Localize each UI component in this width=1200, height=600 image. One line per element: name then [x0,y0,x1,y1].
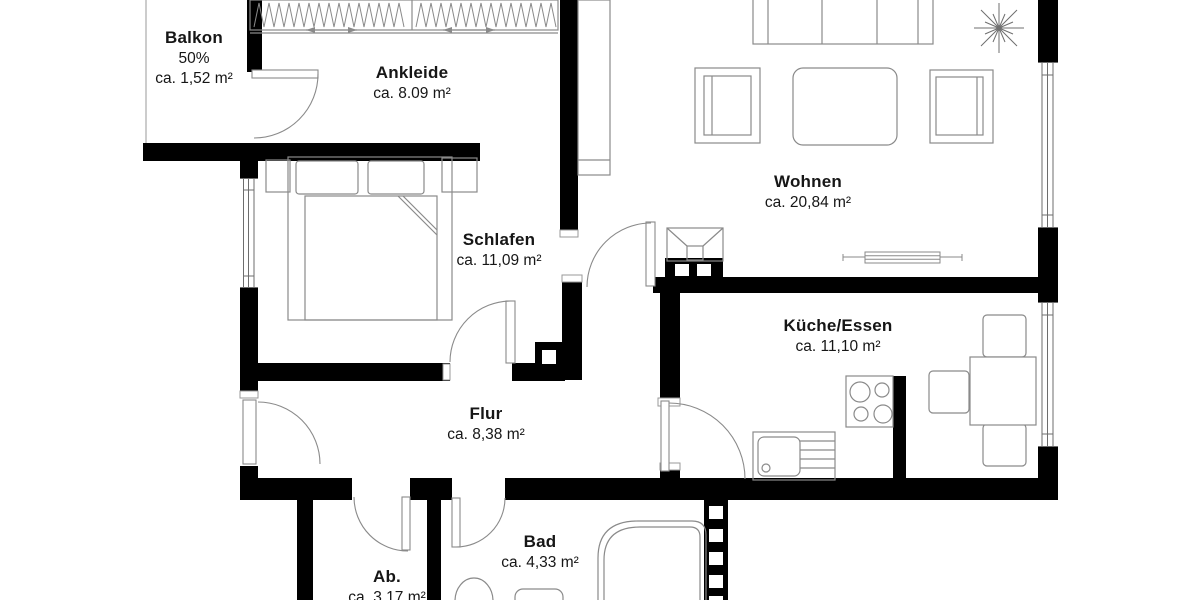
room-label-ankleide: Ankleide ca. 8.09 m² [373,62,451,104]
tv-cabinet-hole-2 [697,264,711,276]
room-area: ca. 11,09 m² [456,251,541,271]
shaft-bad-hole-4 [709,575,723,588]
shaft-hole [542,350,556,364]
bathtub [598,521,706,600]
window-wohnen [1038,63,1058,228]
door-bad [452,498,505,547]
walls [143,0,1058,600]
door-schlafen [450,301,515,363]
dining-set [929,315,1036,466]
room-name: Bad [501,531,579,553]
door-balkon [252,70,318,138]
floorplan-canvas: Balkon 50% ca. 1,52 m² Ankleide ca. 8.09… [0,0,1200,600]
wall-ankleide-right [560,0,578,230]
wall-schlafen-bottom-left [240,363,450,381]
shaft-bad-hole-2 [709,529,723,542]
wall-balkon-divider [247,0,262,72]
room-area: ca. 1,52 m² [155,69,233,89]
pillow-left [296,161,358,194]
room-label-balkon: Balkon 50% ca. 1,52 m² [155,27,233,89]
room-name: Balkon [155,27,233,49]
window-schlafen [240,179,258,288]
door-wohnen [587,222,655,287]
armchair-right [930,70,993,143]
armchair-left [695,68,760,143]
room-area: ca. 3,17 m² [348,588,426,600]
shaft-bad-hole-5 [709,596,723,600]
window-kueche [1038,303,1058,447]
wall-right-2 [1038,228,1058,302]
wall-left-2 [240,288,258,398]
wall-kueche-left [660,290,680,400]
room-label-ab: Ab. ca. 3,17 m² [348,566,426,600]
room-name: Wohnen [765,171,851,193]
radiator [843,252,962,263]
kitchen-sink-unit [753,432,835,480]
tv [667,228,723,261]
sofa [753,0,933,44]
door-ab [354,497,410,551]
dining-chair-left [929,371,969,413]
dining-table [970,357,1036,425]
room-label-wohnen: Wohnen ca. 20,84 m² [765,171,851,213]
wall-ab-left [297,500,313,600]
room-note: 50% [155,49,233,69]
wardrobe [250,0,558,33]
wall-stove-stub [893,376,906,480]
room-name: Küche/Essen [784,315,893,337]
wall-right-1 [1038,0,1058,62]
room-label-bad: Bad ca. 4,33 m² [501,531,579,573]
stove [846,376,893,427]
room-label-schlafen: Schlafen ca. 11,09 m² [456,229,541,271]
dining-chair-top [983,315,1026,357]
shaft-bad-hole-3 [709,552,723,565]
cabinet-wohnen [578,0,610,175]
wall-left-1 [240,143,258,178]
door-entrance [243,400,320,464]
furniture [250,0,1036,600]
blanket-fold [398,196,437,235]
room-area: ca. 20,84 m² [765,193,851,213]
room-area: ca. 8,38 m² [447,425,525,445]
room-name: Ankleide [373,62,451,84]
wall-bottom-left [240,478,352,500]
room-name: Schlafen [456,229,541,251]
plant-icon [974,3,1024,53]
dining-chair-bottom [983,424,1026,466]
wall-schlafen-top [143,143,480,161]
wall-schlafen-bottom-right [512,363,565,381]
room-area: ca. 8.09 m² [373,84,451,104]
room-label-kueche: Küche/Essen ca. 11,10 m² [784,315,893,357]
toilet [515,589,563,600]
coffee-table [793,68,897,145]
bed [266,157,477,320]
nightstand-left [266,160,290,192]
room-name: Ab. [348,566,426,588]
nightstand-right [442,158,477,192]
room-label-flur: Flur ca. 8,38 m² [447,403,525,445]
room-name: Flur [447,403,525,425]
room-area: ca. 4,33 m² [501,553,579,573]
floorplan-svg [0,0,1200,600]
wall-right-3 [1038,447,1058,500]
tv-cabinet-hole-1 [675,264,689,276]
wash-basin [455,578,493,600]
tv-cabinet-block [665,258,723,293]
room-area: ca. 11,10 m² [784,337,893,357]
wall-kueche-left-stub [660,470,680,482]
wall-bottom-main [505,478,1058,500]
pillow-right [368,161,424,194]
shaft-bad-hole-1 [709,506,723,519]
wall-ab-bad-divider [427,495,441,600]
